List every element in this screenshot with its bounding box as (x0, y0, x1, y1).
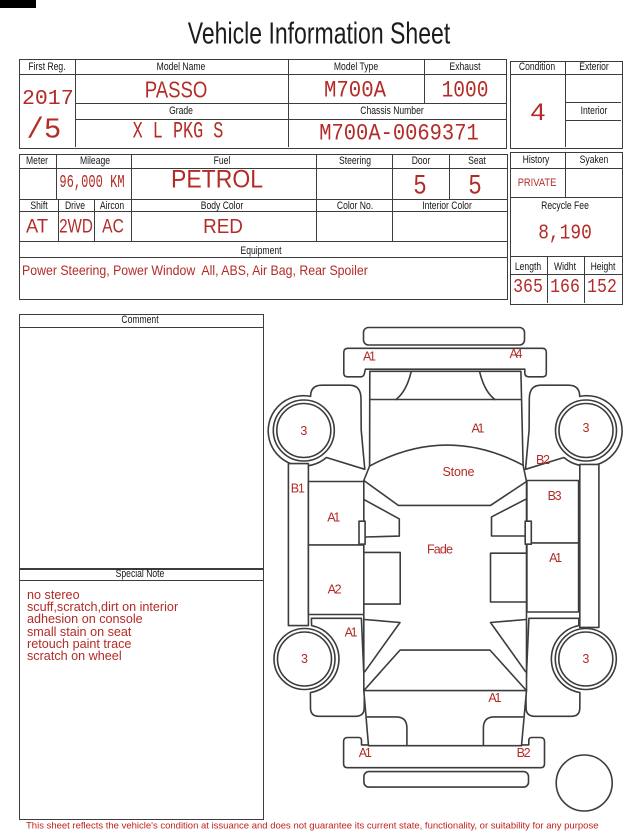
svg-text:B2: B2 (536, 453, 550, 467)
svg-text:B1: B1 (291, 482, 305, 496)
svg-text:A1: A1 (345, 626, 358, 640)
svg-text:A1: A1 (327, 511, 340, 525)
svg-text:A1: A1 (472, 422, 485, 436)
svg-text:A1: A1 (549, 551, 562, 565)
svg-text:A4: A4 (510, 347, 523, 361)
svg-text:Stone: Stone (443, 465, 475, 479)
svg-text:B2: B2 (517, 746, 531, 760)
svg-text:3: 3 (300, 424, 307, 438)
svg-text:A1: A1 (488, 691, 501, 705)
svg-text:3: 3 (301, 652, 308, 666)
svg-text:3: 3 (582, 652, 589, 666)
svg-text:A1: A1 (363, 350, 376, 364)
svg-text:A1: A1 (359, 746, 372, 760)
svg-text:A2: A2 (328, 583, 342, 597)
svg-text:3: 3 (583, 421, 590, 435)
svg-text:Fade: Fade (427, 543, 453, 557)
svg-text:B3: B3 (548, 489, 562, 503)
